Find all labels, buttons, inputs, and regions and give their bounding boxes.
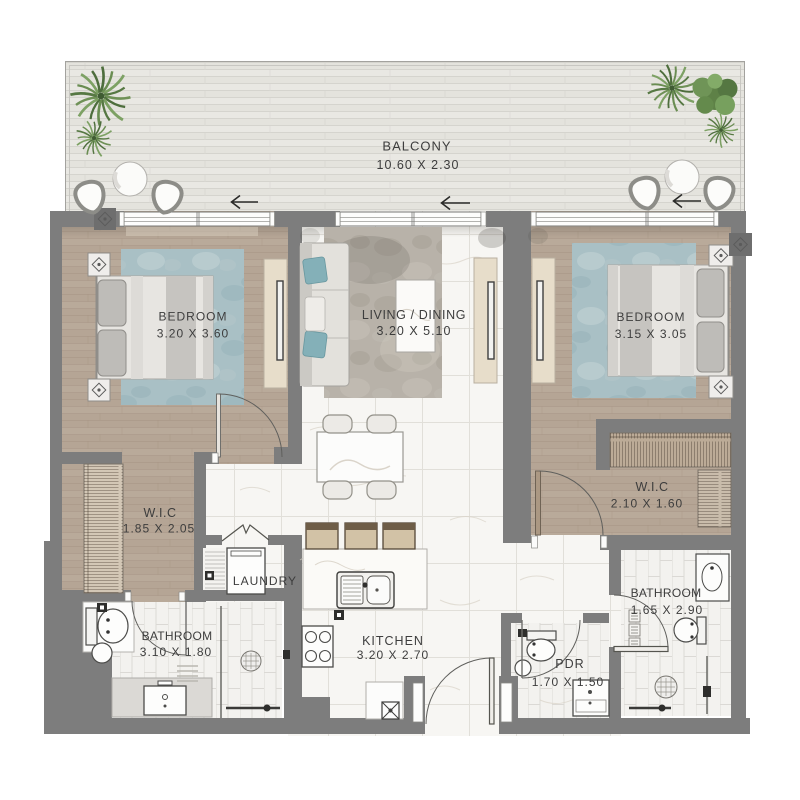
svg-text:1.70 X 1.50: 1.70 X 1.50: [532, 675, 604, 689]
svg-text:LIVING / DINING: LIVING / DINING: [362, 308, 466, 322]
svg-text:3.10 X 1.80: 3.10 X 1.80: [140, 645, 212, 659]
svg-text:LAUNDRY: LAUNDRY: [233, 574, 297, 588]
svg-text:2.10 X 1.60: 2.10 X 1.60: [611, 497, 683, 511]
svg-text:W.I.C: W.I.C: [143, 506, 176, 520]
svg-text:BALCONY: BALCONY: [382, 139, 451, 154]
svg-text:W.I.C: W.I.C: [635, 480, 668, 494]
svg-text:3.20 X 2.70: 3.20 X 2.70: [357, 648, 429, 662]
svg-text:KITCHEN: KITCHEN: [362, 634, 424, 648]
svg-text:3.20 X 3.60: 3.20 X 3.60: [157, 327, 229, 341]
svg-text:1.65 X 2.90: 1.65 X 2.90: [631, 603, 703, 617]
svg-text:1.85 X 2.05: 1.85 X 2.05: [123, 522, 195, 536]
svg-text:3.20 X 5.10: 3.20 X 5.10: [377, 324, 452, 338]
svg-text:BATHROOM: BATHROOM: [631, 586, 702, 600]
svg-text:BEDROOM: BEDROOM: [158, 310, 227, 324]
svg-text:PDR: PDR: [555, 657, 584, 671]
svg-text:3.15 X 3.05: 3.15 X 3.05: [615, 327, 687, 341]
svg-text:BEDROOM: BEDROOM: [616, 310, 685, 324]
svg-text:BATHROOM: BATHROOM: [142, 629, 213, 643]
svg-text:10.60 X 2.30: 10.60 X 2.30: [377, 158, 460, 172]
